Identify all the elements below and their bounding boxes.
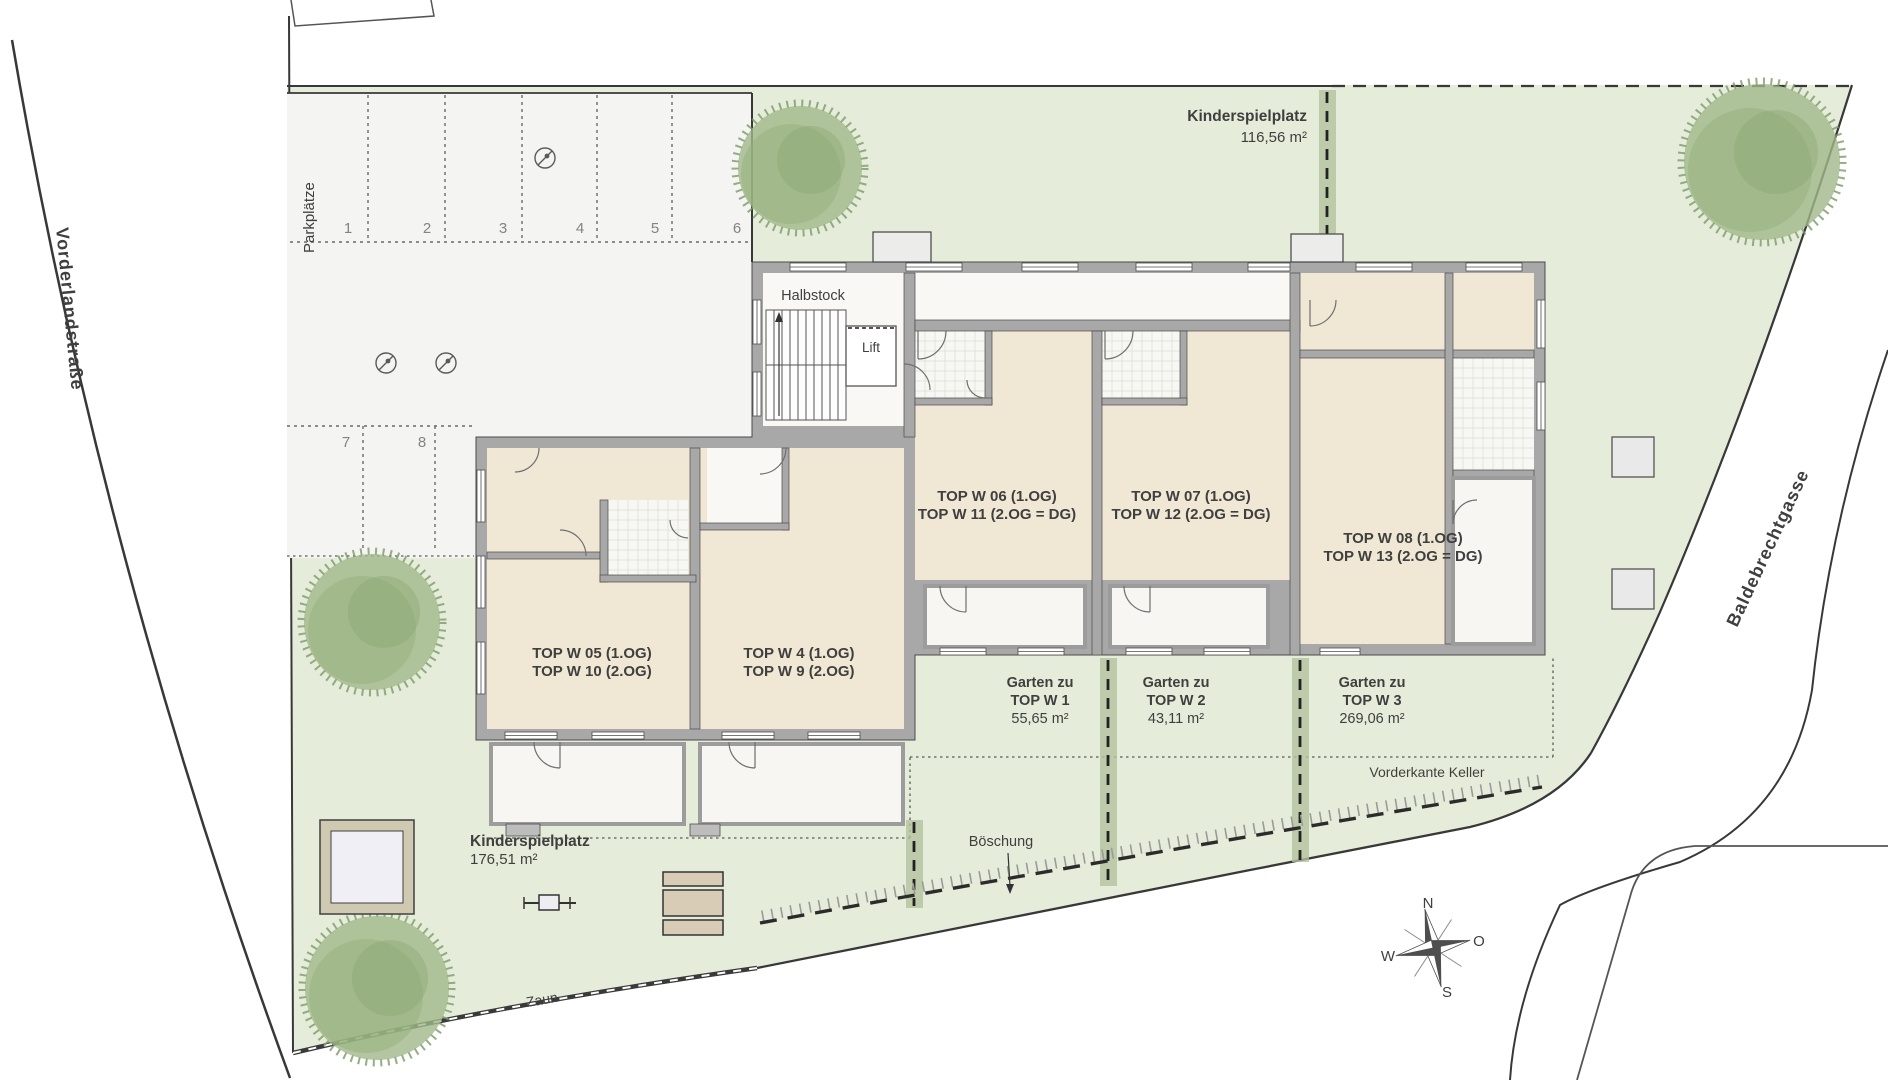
parking-spot-number: 4: [576, 220, 584, 237]
site-plan-drawing: Parkplätze 1 2 3 4 5 6 7 8: [0, 0, 1888, 1080]
apartment-label: TOP W 9 (2.OG): [743, 663, 854, 680]
parking-spot-number: 2: [423, 220, 431, 237]
garden-label: Garten zu: [1339, 675, 1406, 691]
halbstock-label: Halbstock: [781, 288, 845, 304]
apartment-floor-w08: [1300, 358, 1445, 644]
garden-area: 43,11 m²: [1148, 711, 1204, 727]
playground-area-bottom: 176,51 m²: [470, 851, 538, 868]
entry-steps: [690, 824, 720, 836]
playground-area-top: 116,56 m²: [1241, 129, 1307, 146]
embankment-label: Böschung: [969, 834, 1034, 850]
apartment-label: TOP W 13 (2.OG = DG): [1323, 548, 1482, 565]
garden-area: 55,65 m²: [1011, 711, 1068, 727]
apartment-label: TOP W 10 (2.OG): [532, 663, 651, 680]
parking-spot-number: 5: [651, 220, 659, 237]
apartment-label: TOP W 06 (1.OG): [937, 488, 1056, 505]
utility-box: [1612, 569, 1654, 609]
roof-box: [873, 232, 931, 262]
site-plan-page: Parkplätze 1 2 3 4 5 6 7 8: [0, 0, 1888, 1080]
roof-box: [1291, 234, 1343, 262]
apartment-floor-w08: [1300, 273, 1445, 350]
room-white: [707, 448, 782, 523]
staircase: [766, 310, 846, 420]
playground-label-bottom: Kinderspielplatz: [470, 833, 590, 850]
apartment-label: TOP W 11 (2.OG = DG): [918, 506, 1076, 523]
garden-label: TOP W 1: [1010, 693, 1069, 709]
compass-east-label: O: [1473, 933, 1485, 950]
apartment-label: TOP W 07 (1.OG): [1131, 488, 1250, 505]
compass-west-label: W: [1381, 948, 1396, 965]
apartment-label: TOP W 08 (1.OG): [1343, 530, 1462, 547]
apartment-label: TOP W 12 (2.OG = DG): [1111, 506, 1270, 523]
playground-label-top: Kinderspielplatz: [1187, 108, 1307, 125]
bench-icons: [663, 872, 723, 935]
garden-area: 269,06 m²: [1339, 711, 1404, 727]
garden-label: Garten zu: [1007, 675, 1074, 691]
apartment-floor-w08: [1453, 273, 1534, 350]
garden-label: TOP W 3: [1342, 693, 1401, 709]
parking-spot-number: 8: [418, 434, 426, 451]
bench-icon: [663, 872, 723, 886]
bench-icon: [663, 890, 723, 916]
compass-south-label: S: [1442, 984, 1452, 1001]
parking-spot-number: 6: [733, 220, 741, 237]
parking-spot-number: 3: [499, 220, 507, 237]
lift-shaft: [846, 326, 896, 386]
parking-label: Parkplätze: [301, 182, 318, 253]
sandbox-icon: [320, 820, 414, 914]
parking-spot-number: 7: [342, 434, 350, 451]
garden-label: Garten zu: [1143, 675, 1210, 691]
apartment-label: TOP W 4 (1.OG): [743, 645, 854, 662]
compass-north-label: N: [1423, 895, 1434, 912]
utility-box: [1612, 437, 1654, 477]
lift-label: Lift: [862, 340, 880, 355]
bench-icon: [663, 920, 723, 935]
parking-spot-number: 1: [344, 220, 352, 237]
basement-edge-label: Vorderkante Keller: [1369, 764, 1485, 780]
garden-label: TOP W 2: [1146, 693, 1205, 709]
apartment-label: TOP W 05 (1.OG): [532, 645, 651, 662]
